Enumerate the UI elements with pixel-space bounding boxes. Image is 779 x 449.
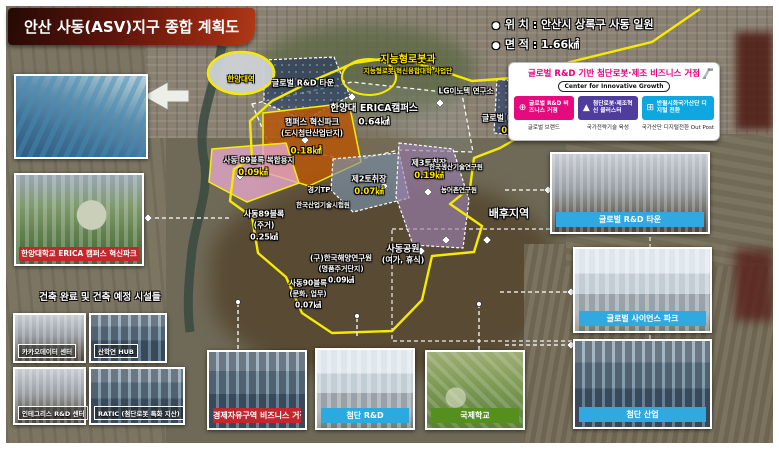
- facility-label-kakao: 카카오데이터 센터: [18, 344, 76, 358]
- zone-area-pit2: 0.07㎢: [354, 185, 383, 197]
- zone-area-block89: 0.25㎢: [250, 232, 278, 243]
- pillar-digital-transform: ⊞ 반월시화국가산단 디지털 전환 국가산단 디지털전환 Out Post: [642, 96, 714, 131]
- pillar-label: 글로벌 R&D 비즈니스 거점: [529, 101, 572, 114]
- location-text: 위 치 : 안산시 상록구 사동 일원: [505, 18, 654, 31]
- pillar-global-rnd: ⊕ 글로벌 R&D 비즈니스 거점 글로벌 브랜드: [514, 96, 574, 131]
- zone-sub-campus-innopark: (도시첨단산업단지): [281, 128, 343, 139]
- robot-dept-subtitle: 지능형로봇 혁신융합대학 사업단: [364, 65, 452, 75]
- zone-label-hinterland: 배후지역: [489, 205, 529, 221]
- facility-label-ratic: RATIC (첨단로봇 특화 지산): [94, 406, 184, 420]
- facilities-header: 건축 완료 및 건축 예정 시설들: [39, 289, 160, 303]
- zone-label-gyeonggi-tp: 경기TP: [308, 185, 331, 195]
- vision-title: 글로벌 R&D 기반 첨단로봇·제조 비즈니스 거점: [514, 67, 714, 79]
- photo-global-rnd-town: 글로벌 R&D 타운: [550, 152, 710, 234]
- satellite-factory-roofs-1: [736, 32, 773, 130]
- photo-intl-school: 국제학교: [425, 350, 525, 430]
- facility-photo-ratic: RATIC (첨단로봇 특화 지산): [89, 367, 185, 425]
- harbor-aerial-photo: [14, 74, 148, 159]
- bullet-icon: ●: [492, 21, 500, 31]
- photo-economic-zone: 경제자유구역 비즈니스 거점: [207, 350, 307, 430]
- facility-label-hub: 산학연 HUB: [94, 344, 138, 358]
- robot-arm-icon: [700, 65, 716, 81]
- pillar-caption: 국가전략기술 육성: [578, 123, 638, 131]
- digital-icon: ⊞: [644, 103, 657, 113]
- zone-label-kitech: 한국생산기술연구원: [429, 161, 483, 171]
- photo-label-advanced-rnd: 첨단 R&D: [321, 408, 409, 423]
- zone-label-erica: 한양대 ERICA캠퍼스: [330, 100, 417, 114]
- robot-arm-icon: ▲: [580, 103, 593, 113]
- zone-label-sadong-park: 사동공원: [386, 242, 419, 255]
- facility-photo-kakao: 카카오데이터 센터: [13, 313, 86, 363]
- photo-label-intl-school: 국제학교: [431, 408, 519, 423]
- plan-map-page: 지능형로봇과 지능형로봇 혁신융합대학 사업단 한양대역 글로벌 R&D 타운 …: [0, 0, 779, 449]
- photo-advanced-rnd: 첨단 R&D: [315, 348, 415, 430]
- photo-global-science-park: 글로벌 사이언스 파크: [573, 247, 712, 333]
- facility-label-entegris: 인테그리스 R&D 센터: [18, 406, 88, 420]
- zone-label-campus-innopark: 캠퍼스 혁신파크: [285, 117, 339, 128]
- photo-label-global-rnd-town: 글로벌 R&D 타운: [556, 212, 704, 227]
- zone-sub-block89: (주거): [254, 220, 275, 231]
- zone-area-block89-mixed: 0.09㎢: [238, 166, 267, 178]
- pillar-caption: 글로벌 브랜드: [514, 123, 574, 131]
- facility-photo-hub: 산학연 HUB: [89, 313, 167, 363]
- bullet-icon: ●: [492, 41, 500, 51]
- zone-sub-block90: (문화, 업무): [289, 289, 326, 299]
- photo-label-advanced-industry: 첨단 산업: [579, 407, 706, 422]
- area-text: 면 적 : 1.66㎢: [505, 38, 579, 51]
- zone-sub-kordi: (명품주거단지): [318, 264, 363, 274]
- robot-dept-title: 지능형로봇과: [380, 51, 435, 66]
- globe-icon: ⊕: [516, 103, 529, 113]
- pillar-label: 반월시화국가산단 디지털 전환: [657, 101, 712, 114]
- meta-info: ●위 치 : 안산시 상록구 사동 일원 ●면 적 : 1.66㎢: [492, 16, 654, 56]
- photo-label-economic-zone: 경제자유구역 비즈니스 거점: [213, 408, 301, 423]
- page-title: 안산 사동(ASV)지구 종합 계획도: [8, 8, 255, 45]
- erica-campus-photo-label: 한양대학교 ERICA 캠퍼스 혁신파크: [19, 247, 139, 261]
- zone-label-rri: 농어촌연구원: [441, 184, 477, 194]
- zone-label-lg-innotek: LG이노텍 연구소: [439, 86, 494, 97]
- erica-campus-photo: 한양대학교 ERICA 캠퍼스 혁신파크: [14, 173, 144, 266]
- satellite-factory-roofs-2: [735, 249, 773, 321]
- photo-label-global-science-park: 글로벌 사이언스 파크: [579, 311, 706, 326]
- zone-area-erica: 0.64㎢: [358, 115, 389, 128]
- zone-area-kordi: 0.09㎢: [328, 275, 354, 286]
- zone-label-grd-town-nw: 글로벌 R&D 타운: [272, 78, 334, 89]
- zone-label-ktl: 한국산업기술시험원: [296, 199, 350, 209]
- pillar-caption: 국가산단 디지털전환 Out Post: [642, 123, 714, 131]
- pillar-robot-cluster: ▲ 첨단로봇·제조혁신 클러스터 국가전략기술 육성: [578, 96, 638, 131]
- zone-label-block90: 사동90블록: [289, 278, 327, 289]
- zone-label-pit2: 제2토취장: [351, 174, 386, 185]
- facility-photo-entegris: 인테그리스 R&D 센터: [13, 367, 86, 425]
- zone-label-kordi: (구)한국해양연구원: [310, 253, 372, 264]
- vision-subtitle: Center for Innovative Growth: [558, 81, 670, 92]
- zone-label-block89: 사동89블록: [244, 209, 285, 220]
- zone-area-campus-innopark: 0.18㎢: [290, 144, 321, 157]
- zone-label-block89-mixed: 사동 89블록 복합용지: [224, 155, 295, 166]
- photo-advanced-industry: 첨단 산업: [573, 339, 712, 429]
- pillar-label: 첨단로봇·제조혁신 클러스터: [593, 101, 636, 114]
- zone-area-block90: 0.07㎢: [295, 300, 321, 311]
- hanyang-station-label: 한양대역: [227, 74, 255, 85]
- zone-sub-sadong-park: (여가, 휴식): [382, 255, 425, 266]
- vision-info-box: 글로벌 R&D 기반 첨단로봇·제조 비즈니스 거점 Center for In…: [508, 62, 720, 141]
